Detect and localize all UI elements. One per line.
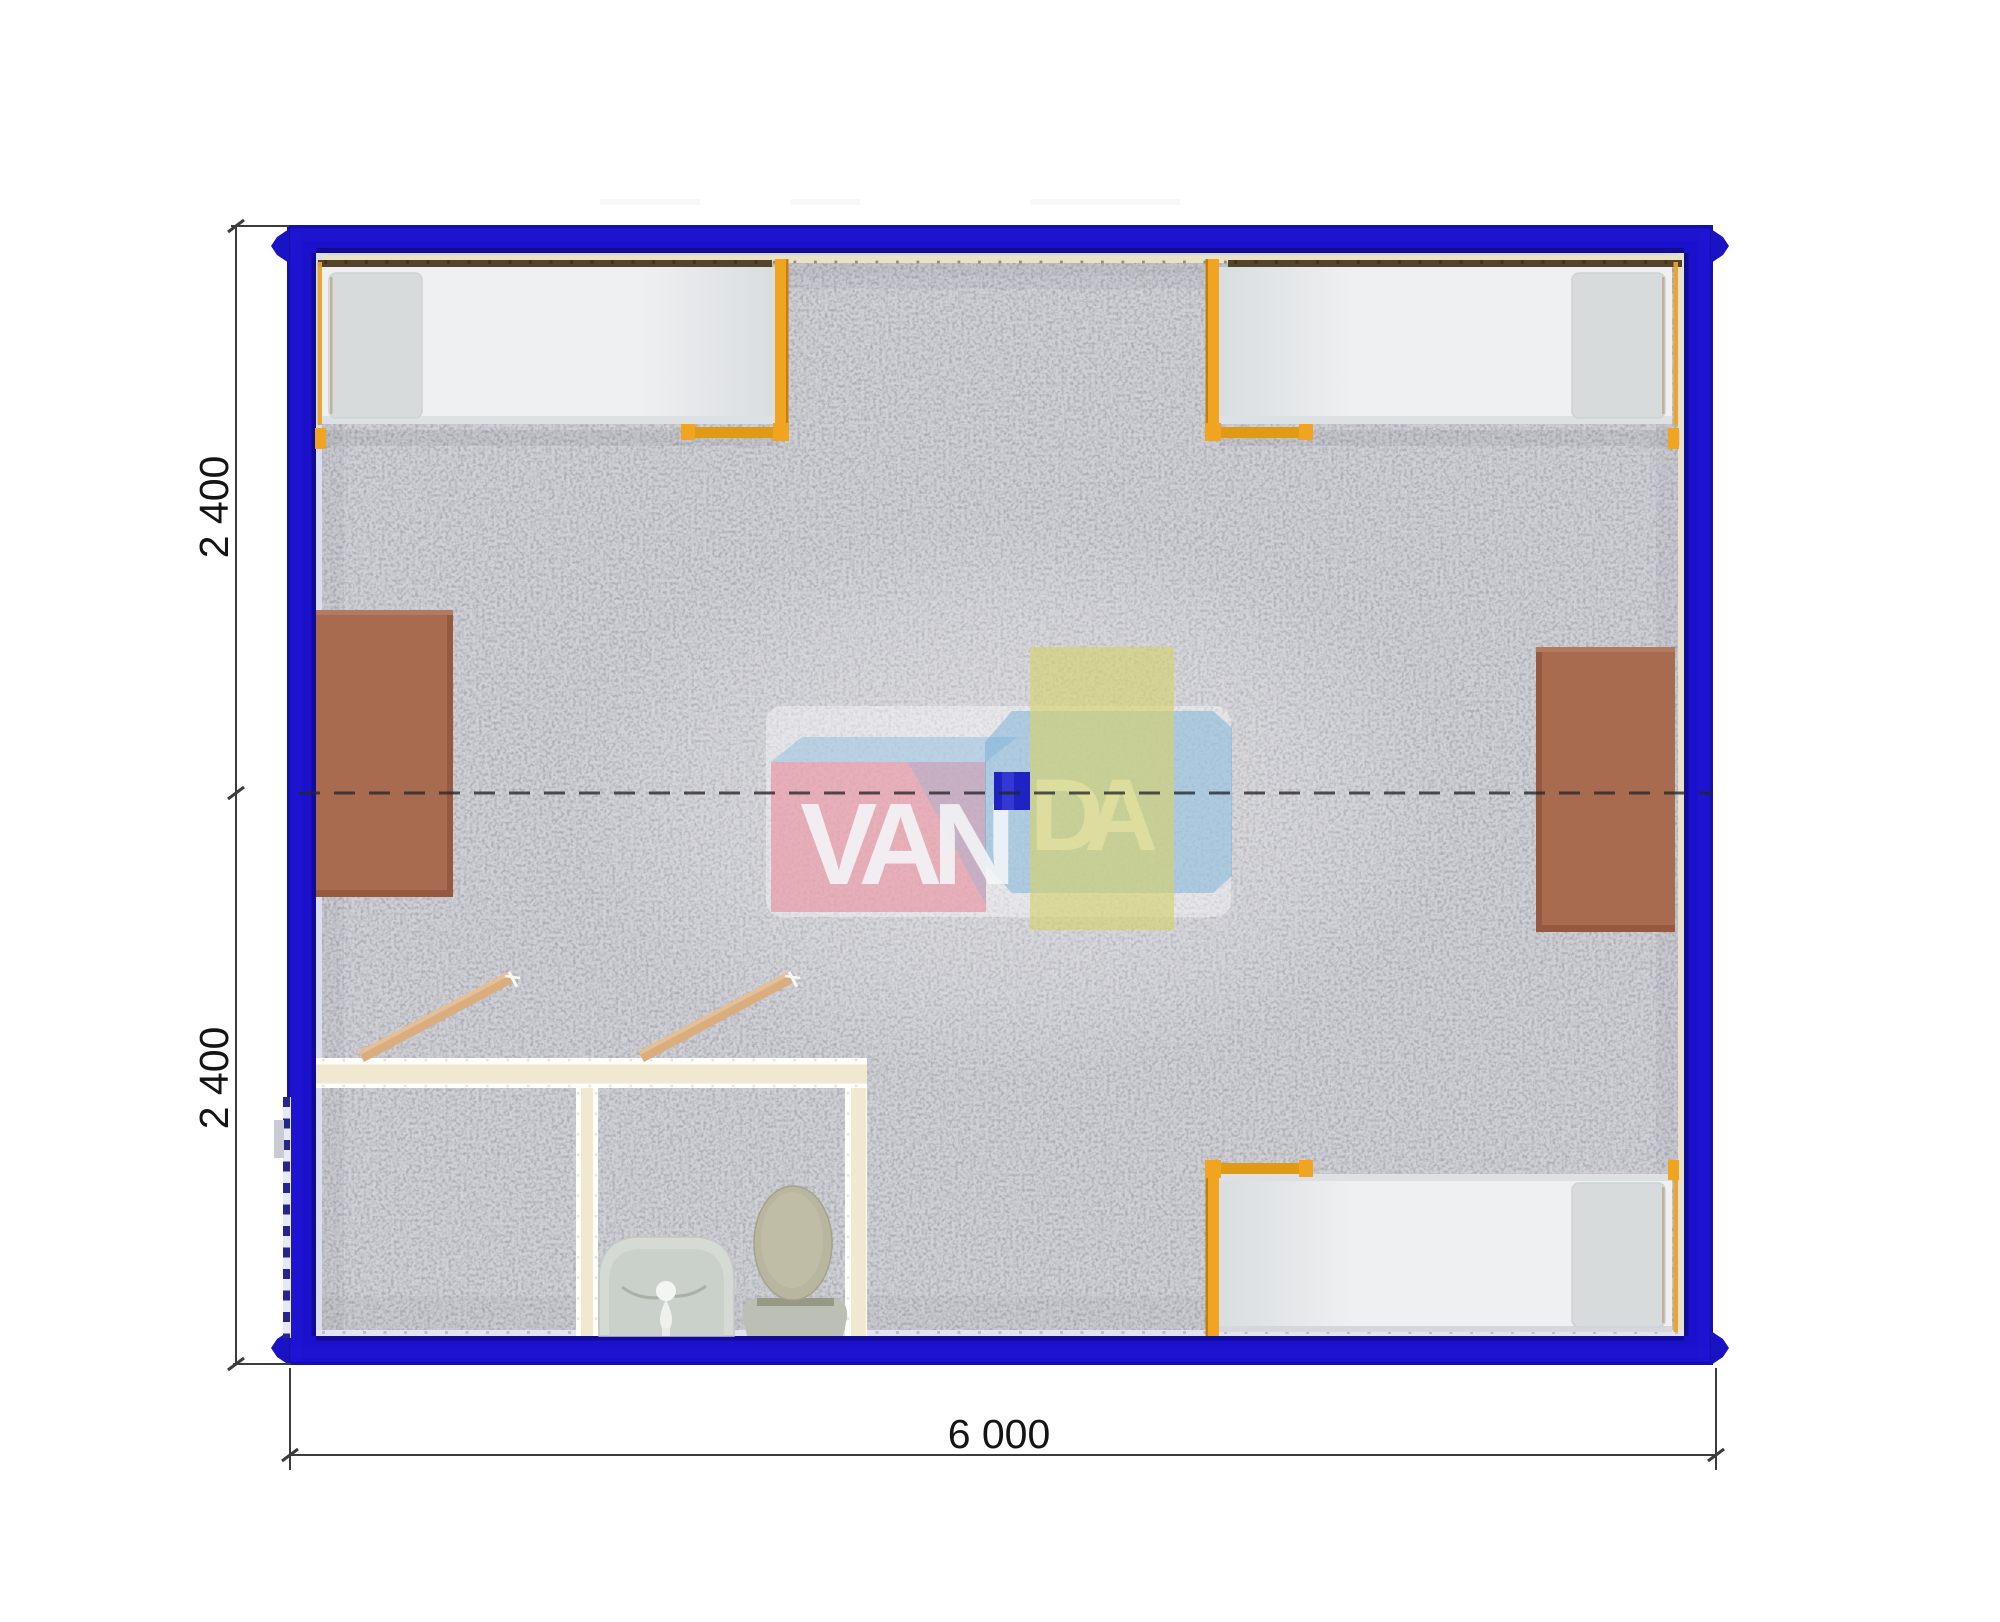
- svg-text:6 000: 6 000: [948, 1411, 1051, 1457]
- svg-text:2 400: 2 400: [191, 1027, 237, 1130]
- svg-text:VAN: VAN: [800, 779, 1016, 909]
- svg-text:2 400: 2 400: [191, 456, 237, 559]
